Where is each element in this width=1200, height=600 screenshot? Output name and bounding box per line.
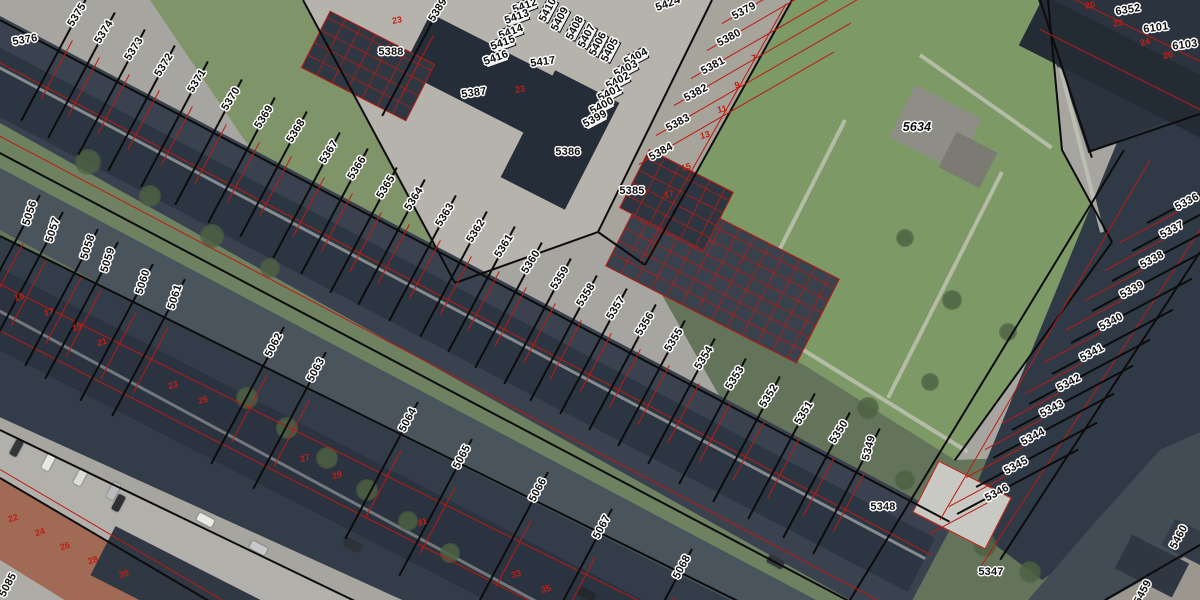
parcel-label-5357: 5357 [604,294,628,322]
house-number-label: 24 [1139,36,1151,48]
parcel-label-5634: 5634 [903,120,932,134]
tree [895,470,915,490]
parcel-label-5373: 5373 [122,35,146,63]
house-number-label: 26 [1162,49,1174,61]
tree [942,290,962,310]
parcel-label-5359: 5359 [548,264,572,292]
parcel-label-5356: 5356 [633,310,657,338]
parcel-label-5388: 5388 [378,46,403,58]
parcel-label-5355: 5355 [662,326,686,354]
house-number-label: 23 [391,14,403,26]
parcel-label-5358: 5358 [574,281,598,309]
parcel-label-5348: 5348 [870,501,895,513]
parcel-label-5375: 5375 [65,1,89,29]
tree [139,185,161,207]
house-number-label: 22 [1112,17,1124,29]
parcel-label-5372: 5372 [152,51,176,79]
parcel-label-5386: 5386 [555,146,580,158]
parcel-label-5385: 5385 [619,185,644,197]
map-viewport[interactable]: 5376537553745373537253715370536953685367… [0,0,1200,600]
tree [398,511,418,531]
tree [921,373,939,391]
parcel-label-5374: 5374 [92,18,116,46]
tree [1019,561,1041,583]
tree [896,229,914,247]
parcel-label-5347: 5347 [978,566,1003,578]
tree [857,397,879,419]
house-number-label: 23 [514,83,526,95]
